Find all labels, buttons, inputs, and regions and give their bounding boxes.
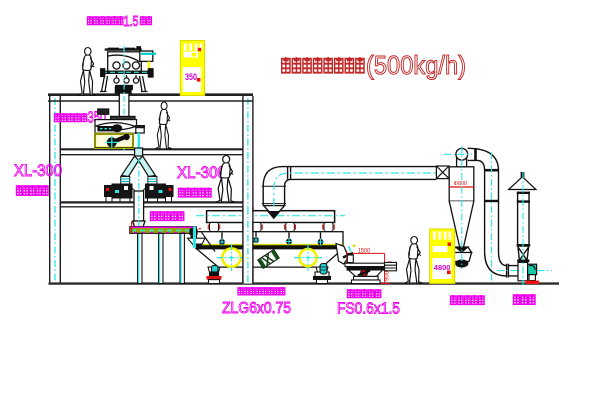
svg-text:Φ800: Φ800 [454, 181, 468, 187]
svg-text:(500kg/h): (500kg/h) [366, 50, 466, 80]
svg-text:ZLG6x0.75: ZLG6x0.75 [222, 300, 291, 317]
svg-text:900: 900 [385, 270, 391, 281]
svg-text:1.5: 1.5 [124, 14, 139, 30]
svg-text:1500: 1500 [358, 248, 371, 254]
svg-text:FS0.6x1.5: FS0.6x1.5 [337, 301, 400, 318]
svg-text:XL-300: XL-300 [177, 164, 226, 182]
svg-text:XL-300: XL-300 [14, 162, 62, 180]
svg-text:350: 350 [185, 72, 197, 82]
